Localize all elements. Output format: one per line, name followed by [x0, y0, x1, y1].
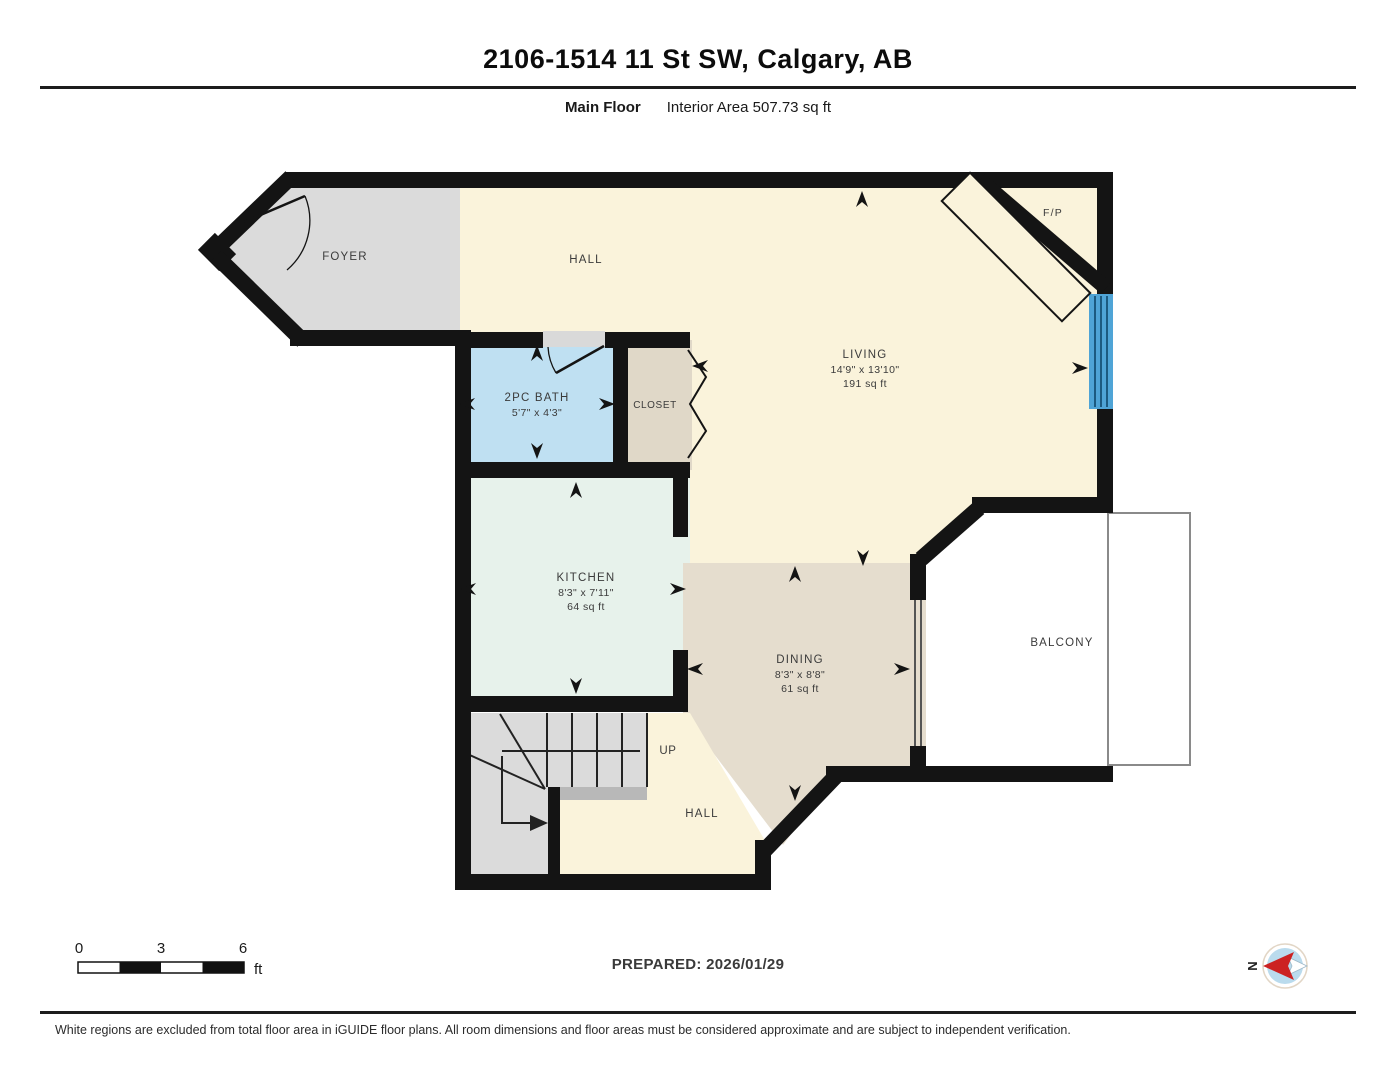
living-dims: 14'9" x 13'10" — [830, 364, 899, 376]
footer-divider — [40, 1011, 1356, 1014]
hall-upper-label: HALL — [569, 254, 603, 266]
balcony-label: BALCONY — [1030, 637, 1093, 649]
stairs-floor-lower — [463, 787, 548, 874]
hall-lower-label: HALL — [685, 808, 719, 820]
dining-label: DINING — [776, 654, 823, 666]
closet-label: CLOSET — [633, 400, 677, 411]
bath-dims: 5'7" x 4'3" — [512, 407, 562, 419]
kitchen-label: KITCHEN — [557, 572, 616, 584]
kitchen-dims: 8'3" x 7'11" — [558, 587, 614, 599]
stair-landing-strip — [560, 787, 647, 800]
dining-dims: 8'3" x 8'8" — [775, 669, 825, 681]
dining-area: 61 sq ft — [781, 683, 819, 695]
compass-north-label: N — [1245, 961, 1260, 970]
living-area: 191 sq ft — [843, 378, 887, 390]
scale-unit-label: ft — [254, 961, 263, 978]
scale-bar: 0 3 6 ft — [75, 940, 263, 978]
scale-tick-3: 3 — [157, 940, 165, 957]
bath-label: 2PC BATH — [505, 392, 570, 404]
living-label: LIVING — [843, 349, 888, 361]
kitchen-area: 64 sq ft — [567, 601, 605, 613]
compass-icon: N — [1245, 944, 1307, 988]
balcony-outline — [1108, 513, 1190, 765]
prepared-date-label: PREPARED: 2026/01/29 — [498, 956, 898, 973]
floor-plan: FOYER HALL 2PC BATH 5'7" x 4'3" CLOSET L… — [0, 0, 1396, 1080]
stairs-up-label: UP — [659, 745, 676, 757]
foyer-label: FOYER — [322, 251, 368, 263]
scale-tick-0: 0 — [75, 940, 83, 957]
window-icon — [1089, 294, 1113, 409]
fireplace-label: F/P — [1043, 207, 1063, 219]
disclaimer-text: White regions are excluded from total fl… — [55, 1023, 1355, 1037]
scale-tick-6: 6 — [239, 940, 247, 957]
